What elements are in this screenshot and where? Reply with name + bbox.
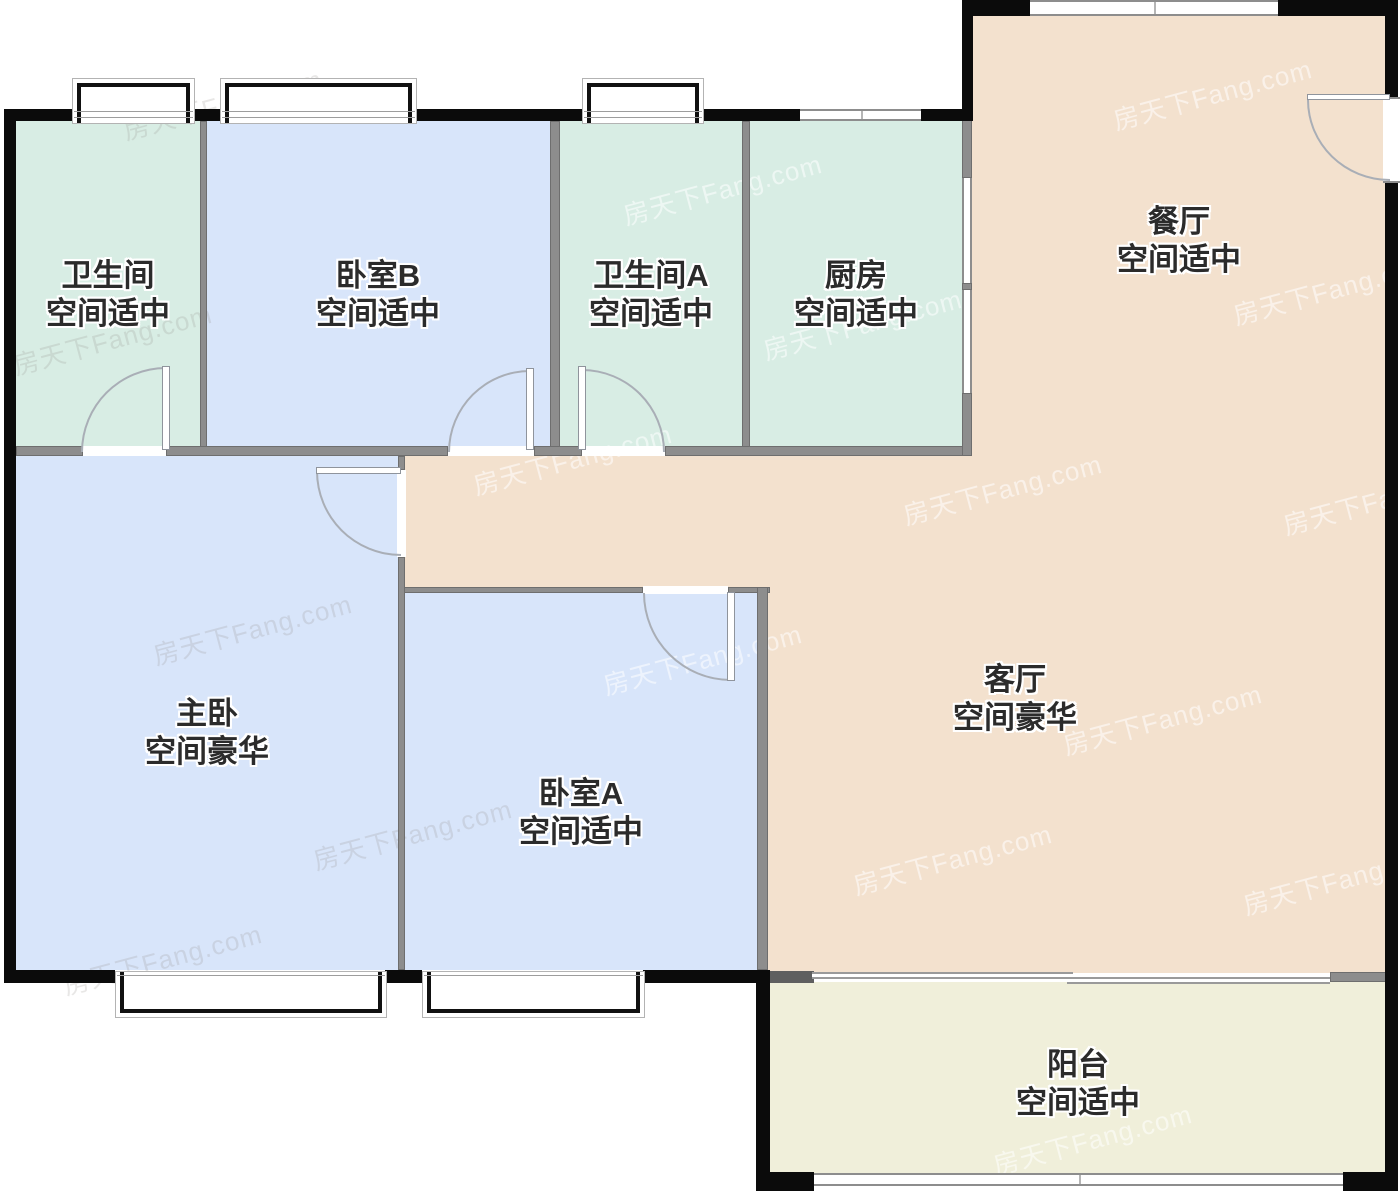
- room-name: 卧室A: [519, 775, 643, 813]
- wall-bedroomb-bathrooma: [550, 121, 560, 456]
- bay-window-bathroom-a: [582, 78, 704, 124]
- room-grade: 空间豪华: [953, 699, 1077, 737]
- room-name: 主卧: [145, 695, 269, 733]
- room-grade: 空间适中: [794, 295, 918, 333]
- label-balcony: 阳台 空间适中: [1016, 1046, 1140, 1122]
- bay-window-bedroom-a: [422, 971, 645, 1018]
- wall-bedrooma-living: [757, 587, 768, 970]
- wall-hall-top: [534, 446, 582, 456]
- wall-balcony-stub-left: [768, 971, 814, 983]
- room-grade: 空间适中: [46, 295, 170, 333]
- room-grade: 空间适中: [1117, 241, 1241, 279]
- sliding-door-balcony-right-panel: [1067, 977, 1330, 984]
- label-bathroom: 卫生间 空间适中: [46, 257, 170, 333]
- room-name: 阳台: [1016, 1046, 1140, 1084]
- label-dining: 餐厅 空间适中: [1117, 203, 1241, 279]
- bay-window-bedroom-b: [220, 78, 417, 124]
- door-leaf-bedroom-a: [727, 592, 735, 681]
- wall-outer-top: [702, 109, 800, 121]
- wall-balcony-corner-right: [1343, 1172, 1398, 1191]
- wall-hall-top: [665, 446, 972, 456]
- window-kitchen-dining-upper: [962, 178, 972, 283]
- label-kitchen: 厨房 空间适中: [794, 257, 918, 333]
- door-leaf-bedroom-b: [526, 368, 534, 450]
- label-bedroom-b: 卧室B 空间适中: [316, 257, 440, 333]
- sliding-door-balcony-left-panel: [812, 972, 1073, 979]
- wall-outer-top: [4, 109, 72, 121]
- room-grade: 空间适中: [1016, 1084, 1140, 1122]
- wall-outer-bottom: [385, 970, 422, 983]
- wall-kitchen-dining: [962, 283, 972, 290]
- wall-outer-top: [415, 109, 582, 121]
- window-kitchen-top: [800, 109, 921, 121]
- room-grade: 空间适中: [589, 295, 713, 333]
- door-leaf-entrance: [1307, 94, 1390, 100]
- wall-balcony-corner-left: [756, 1172, 814, 1191]
- wall-hall-top: [16, 446, 83, 456]
- door-leaf-bathroom: [162, 366, 170, 450]
- wall-kitchen-dining: [962, 393, 972, 456]
- wall-dining-step: [962, 3, 973, 115]
- room-name: 餐厅: [1117, 203, 1241, 241]
- window-dining-top: [1030, 0, 1278, 16]
- room-grade: 空间适中: [519, 813, 643, 851]
- wall-bathroom-bedroomb: [200, 121, 207, 456]
- wall-dining-top: [962, 0, 1030, 16]
- label-bathroom-a: 卫生间A 空间适中: [589, 257, 713, 333]
- room-name: 卫生间A: [589, 257, 713, 295]
- window-kitchen-dining-lower: [962, 290, 972, 393]
- room-name: 厨房: [794, 257, 918, 295]
- room-name: 卧室B: [316, 257, 440, 295]
- room-grade: 空间豪华: [145, 733, 269, 771]
- bay-window-master-bedroom: [115, 971, 387, 1018]
- door-leaf-bathroom-a: [578, 366, 586, 450]
- wall-bedrooma-top: [398, 587, 643, 593]
- label-bedroom-a: 卧室A 空间适中: [519, 775, 643, 851]
- bay-window-bathroom: [72, 78, 195, 124]
- room-grade: 空间适中: [316, 295, 440, 333]
- floor-plan: 房天下Fang.com 房天下Fang.com 房天下Fang.com 房天下F…: [0, 0, 1400, 1191]
- room-name: 客厅: [953, 661, 1077, 699]
- label-master-bedroom: 主卧 空间豪华: [145, 695, 269, 771]
- wall-kitchen-dining: [962, 115, 972, 178]
- wall-bathrooma-kitchen: [742, 121, 750, 456]
- label-living: 客厅 空间豪华: [953, 661, 1077, 737]
- wall-outer-top: [193, 109, 220, 121]
- room-name: 卫生间: [46, 257, 170, 295]
- wall-outer-bottom: [643, 970, 770, 983]
- wall-outer-left: [4, 109, 16, 983]
- wall-master-bedrooma: [398, 557, 405, 970]
- door-leaf-master-bedroom: [316, 467, 401, 474]
- wall-balcony-stub-right: [1330, 972, 1387, 982]
- wall-dining-top: [1278, 0, 1385, 16]
- wall-hall-top: [166, 446, 448, 456]
- window-balcony-bottom: [814, 1173, 1343, 1186]
- wall-outer-bottom: [4, 970, 115, 983]
- wall-balcony-left: [756, 970, 770, 1191]
